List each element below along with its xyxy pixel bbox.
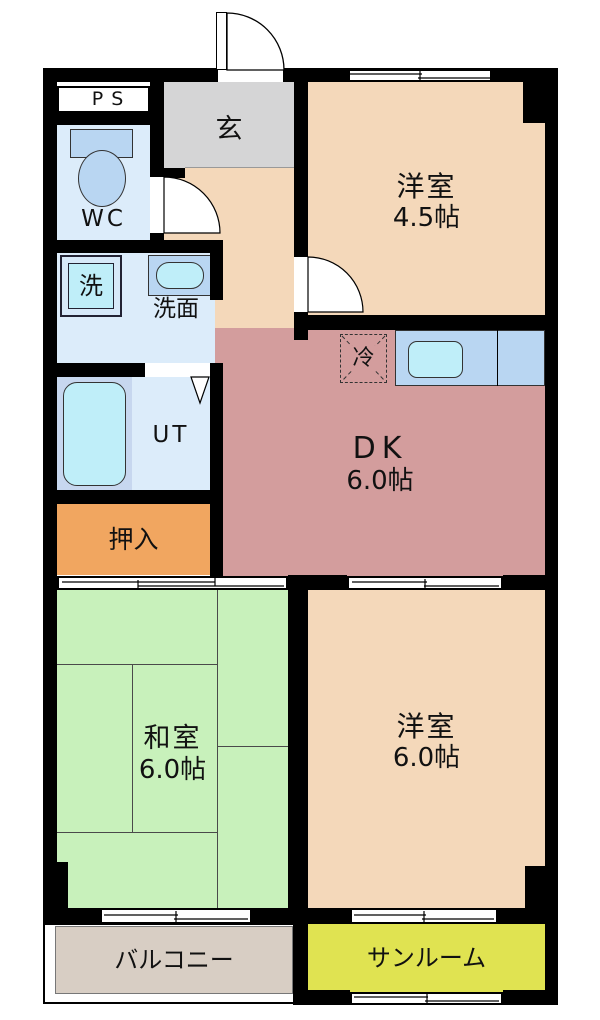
window-room6-bottom: [350, 908, 498, 924]
wall: [294, 315, 558, 330]
wall-pillar: [525, 866, 545, 908]
ps-text: PS: [92, 88, 132, 110]
oshiire-label: 押入: [57, 504, 210, 575]
tatami-line: [57, 664, 217, 665]
wall: [43, 113, 155, 125]
washroom-text: 洗面: [153, 296, 199, 323]
wall-pillar: [57, 862, 68, 908]
window-sunroom-bottom: [350, 992, 503, 1005]
toilet-bowl: [78, 150, 126, 207]
wc-label: WC: [57, 202, 150, 238]
wc-text: WC: [81, 206, 126, 233]
dk-label: DK 6.0帖: [215, 424, 545, 504]
sunroom-label: サンルーム: [308, 924, 545, 992]
sliding-door-washitsu: [57, 576, 288, 590]
window-washitsu-bottom: [100, 908, 252, 924]
washer-text: 洗: [79, 272, 103, 300]
ut-door-opening: [145, 363, 210, 377]
western-6-size: 6.0帖: [393, 743, 460, 774]
fridge-text: 冷: [350, 346, 376, 372]
genkan-step: [185, 167, 294, 168]
ps-label: PS: [57, 86, 158, 113]
western-45-size: 4.5帖: [393, 203, 460, 234]
balcony-label: バルコニー: [55, 926, 293, 994]
ut-text: UT: [153, 422, 190, 449]
ut-label: UT: [132, 418, 210, 454]
wall: [293, 924, 308, 1005]
wall: [150, 233, 164, 253]
western-6-label: 洋室 6.0帖: [308, 702, 545, 782]
genkan-text: 玄: [216, 114, 243, 146]
wall: [503, 575, 558, 590]
wall-pillar: [523, 82, 545, 123]
wall: [288, 575, 347, 590]
basin-bowl: [156, 262, 204, 289]
tatami-line: [57, 832, 217, 833]
washitsu-label: 和室 6.0帖: [57, 716, 288, 792]
sliding-door-room6: [347, 576, 503, 590]
dk-size: 6.0帖: [346, 466, 413, 497]
wall: [210, 240, 223, 300]
fridge-label: 冷: [340, 334, 387, 383]
kitchen-counter-divider: [497, 330, 498, 386]
washer-label: 洗: [60, 255, 122, 317]
kitchen-sink: [408, 341, 463, 378]
western-6-name: 洋室: [396, 710, 456, 743]
wall: [294, 82, 308, 257]
western-45-name: 洋室: [396, 170, 456, 203]
wc-door-opening: [150, 177, 164, 233]
dk-name: DK: [353, 431, 408, 466]
wall: [43, 240, 223, 253]
washitsu-name: 和室: [144, 723, 202, 755]
entrance-door-leaf: [216, 12, 227, 70]
window-room45-top: [348, 69, 492, 82]
sunroom-text: サンルーム: [367, 944, 486, 972]
wall: [503, 990, 545, 1005]
floor-plan: PS WC 玄 洋室 4.5帖 洗 洗面 冷 DK 6.0帖 UT 押入 和室 …: [0, 0, 600, 1020]
oshiire-text: 押入: [108, 525, 158, 555]
bathtub: [63, 382, 126, 486]
genkan-label: 玄: [164, 108, 294, 152]
entrance-door-arc: [227, 13, 284, 70]
balcony-text: バルコニー: [114, 946, 234, 974]
wall: [308, 990, 350, 1005]
washitsu-size: 6.0帖: [139, 755, 206, 786]
wall: [545, 68, 558, 1005]
wall: [43, 575, 57, 590]
wall: [43, 490, 223, 504]
entrance-door-opening: [218, 68, 283, 82]
washroom-label: 洗面: [138, 294, 214, 326]
room45-door-opening: [294, 257, 308, 312]
wall: [288, 590, 308, 908]
western-45-label: 洋室 4.5帖: [308, 162, 545, 242]
